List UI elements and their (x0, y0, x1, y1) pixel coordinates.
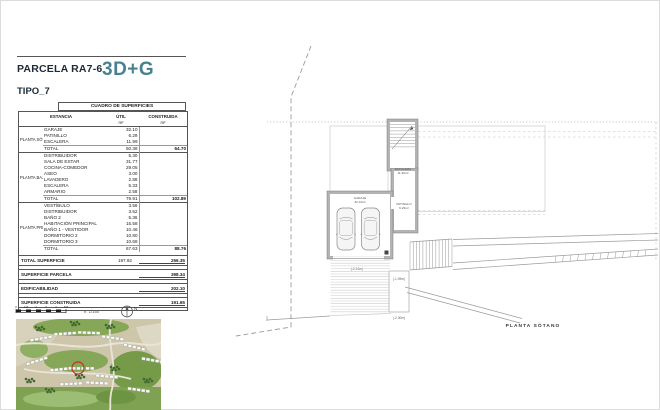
total-construida: 64.70 (139, 145, 187, 152)
total-construida: 102.89 (139, 195, 187, 202)
plan-sheet: PARCELA RA7-6 3D+G TIPO_7 CUADRO DE SUPE… (0, 0, 660, 410)
page-title: PARCELA RA7-6 (17, 63, 102, 75)
car-icon (336, 208, 356, 250)
unit-label: m² (139, 119, 187, 126)
summary-util: 197.92 (99, 258, 139, 263)
upper-floor-outline (330, 126, 388, 192)
summary-row: EDIFICABILIDAD202.10 (19, 283, 187, 294)
summary-label: SUPERFICIE PARCELA (21, 272, 99, 277)
site-map (16, 319, 161, 410)
level-annotation: (-2.30m) (393, 316, 405, 320)
scale-label: e. 1/150 (84, 309, 100, 314)
summary-row: TOTAL SUPERFICIE197.92256.35 (19, 255, 187, 266)
header-rule (17, 56, 186, 57)
summary-construida: 256.35 (139, 258, 185, 264)
summary-construida: 202.10 (139, 286, 185, 292)
col-construida: CONSTRUIDA (139, 112, 187, 119)
north-compass-icon: N (122, 306, 138, 317)
scale-tick: 3 (45, 305, 47, 309)
total-label: TOTAL (43, 245, 103, 252)
table-cell (19, 119, 103, 126)
car-icon (361, 208, 381, 250)
unit-label: m² (103, 119, 139, 126)
patinillo-room-area: 6.29m² (399, 206, 409, 210)
summary-construida: 398.34 (139, 272, 185, 278)
scale-tick: 4 (55, 305, 57, 309)
scale-tick: 0 (15, 305, 17, 309)
scale-bar: 0 1M 2 3 4 5M (15, 305, 68, 313)
col-estancia: ESTANCIA (19, 112, 103, 119)
parcel-boundary (236, 46, 311, 336)
plan-title: PLANTA SÓTANO (506, 321, 561, 329)
surfaces-table: CUADRO DE SUPERFICIES ESTANCIAÚTILCONSTR… (18, 102, 188, 311)
total-label: TOTAL (43, 145, 103, 152)
plan-drawing: GARAJE 32.10m² PATINILLO 6.29m² ESCALERA… (230, 0, 660, 410)
total-util: 79.91 (103, 195, 139, 202)
table-title: CUADRO DE SUPERFICIES (58, 102, 186, 111)
floor-label: PLANTA SÓTANO (19, 126, 43, 152)
floor-label: PLANTA BAJA (19, 152, 43, 202)
brand-logo: 3D+G (102, 59, 154, 81)
upper-floor-outline (418, 126, 545, 212)
type-label: TIPO_7 (17, 86, 50, 97)
garage-room-area: 32.10m² (354, 200, 365, 204)
scale-tick: 5M (64, 305, 69, 309)
escalera-room-area: 11.99m² (397, 171, 408, 175)
scale-tick: 2 (35, 305, 37, 309)
table-body: ESTANCIAÚTILCONSTRUIDAm²m²PLANTA SÓTANOG… (18, 111, 188, 311)
total-util: 67.63 (103, 245, 139, 252)
summary-label: TOTAL SUPERFICIE (21, 258, 99, 263)
north-label: N (134, 306, 137, 311)
level-annotation: (-1.09m) (393, 277, 405, 281)
room-name: HABITACIÓN PRINCIPAL (43, 221, 103, 227)
col-util: ÚTIL (103, 112, 139, 119)
total-util: 50.38 (103, 145, 139, 152)
total-label: TOTAL (43, 195, 103, 202)
scale-tick: 1M (24, 305, 29, 309)
footer-strip: 0 1M 2 3 4 5M e. 1/150 N (0, 300, 220, 320)
summary-row: SUPERFICIE PARCELA398.34 (19, 269, 187, 280)
surfaces-grid: ESTANCIAÚTILCONSTRUIDAm²m²PLANTA SÓTANOG… (19, 112, 187, 252)
total-construida: 88.76 (139, 245, 187, 252)
retaining-walls (405, 234, 658, 324)
level-annotation: (-2.13m) (351, 267, 363, 271)
floor-label: PLANTA PRIMERA (19, 202, 43, 252)
summary-label: EDIFICABILIDAD (21, 286, 99, 291)
